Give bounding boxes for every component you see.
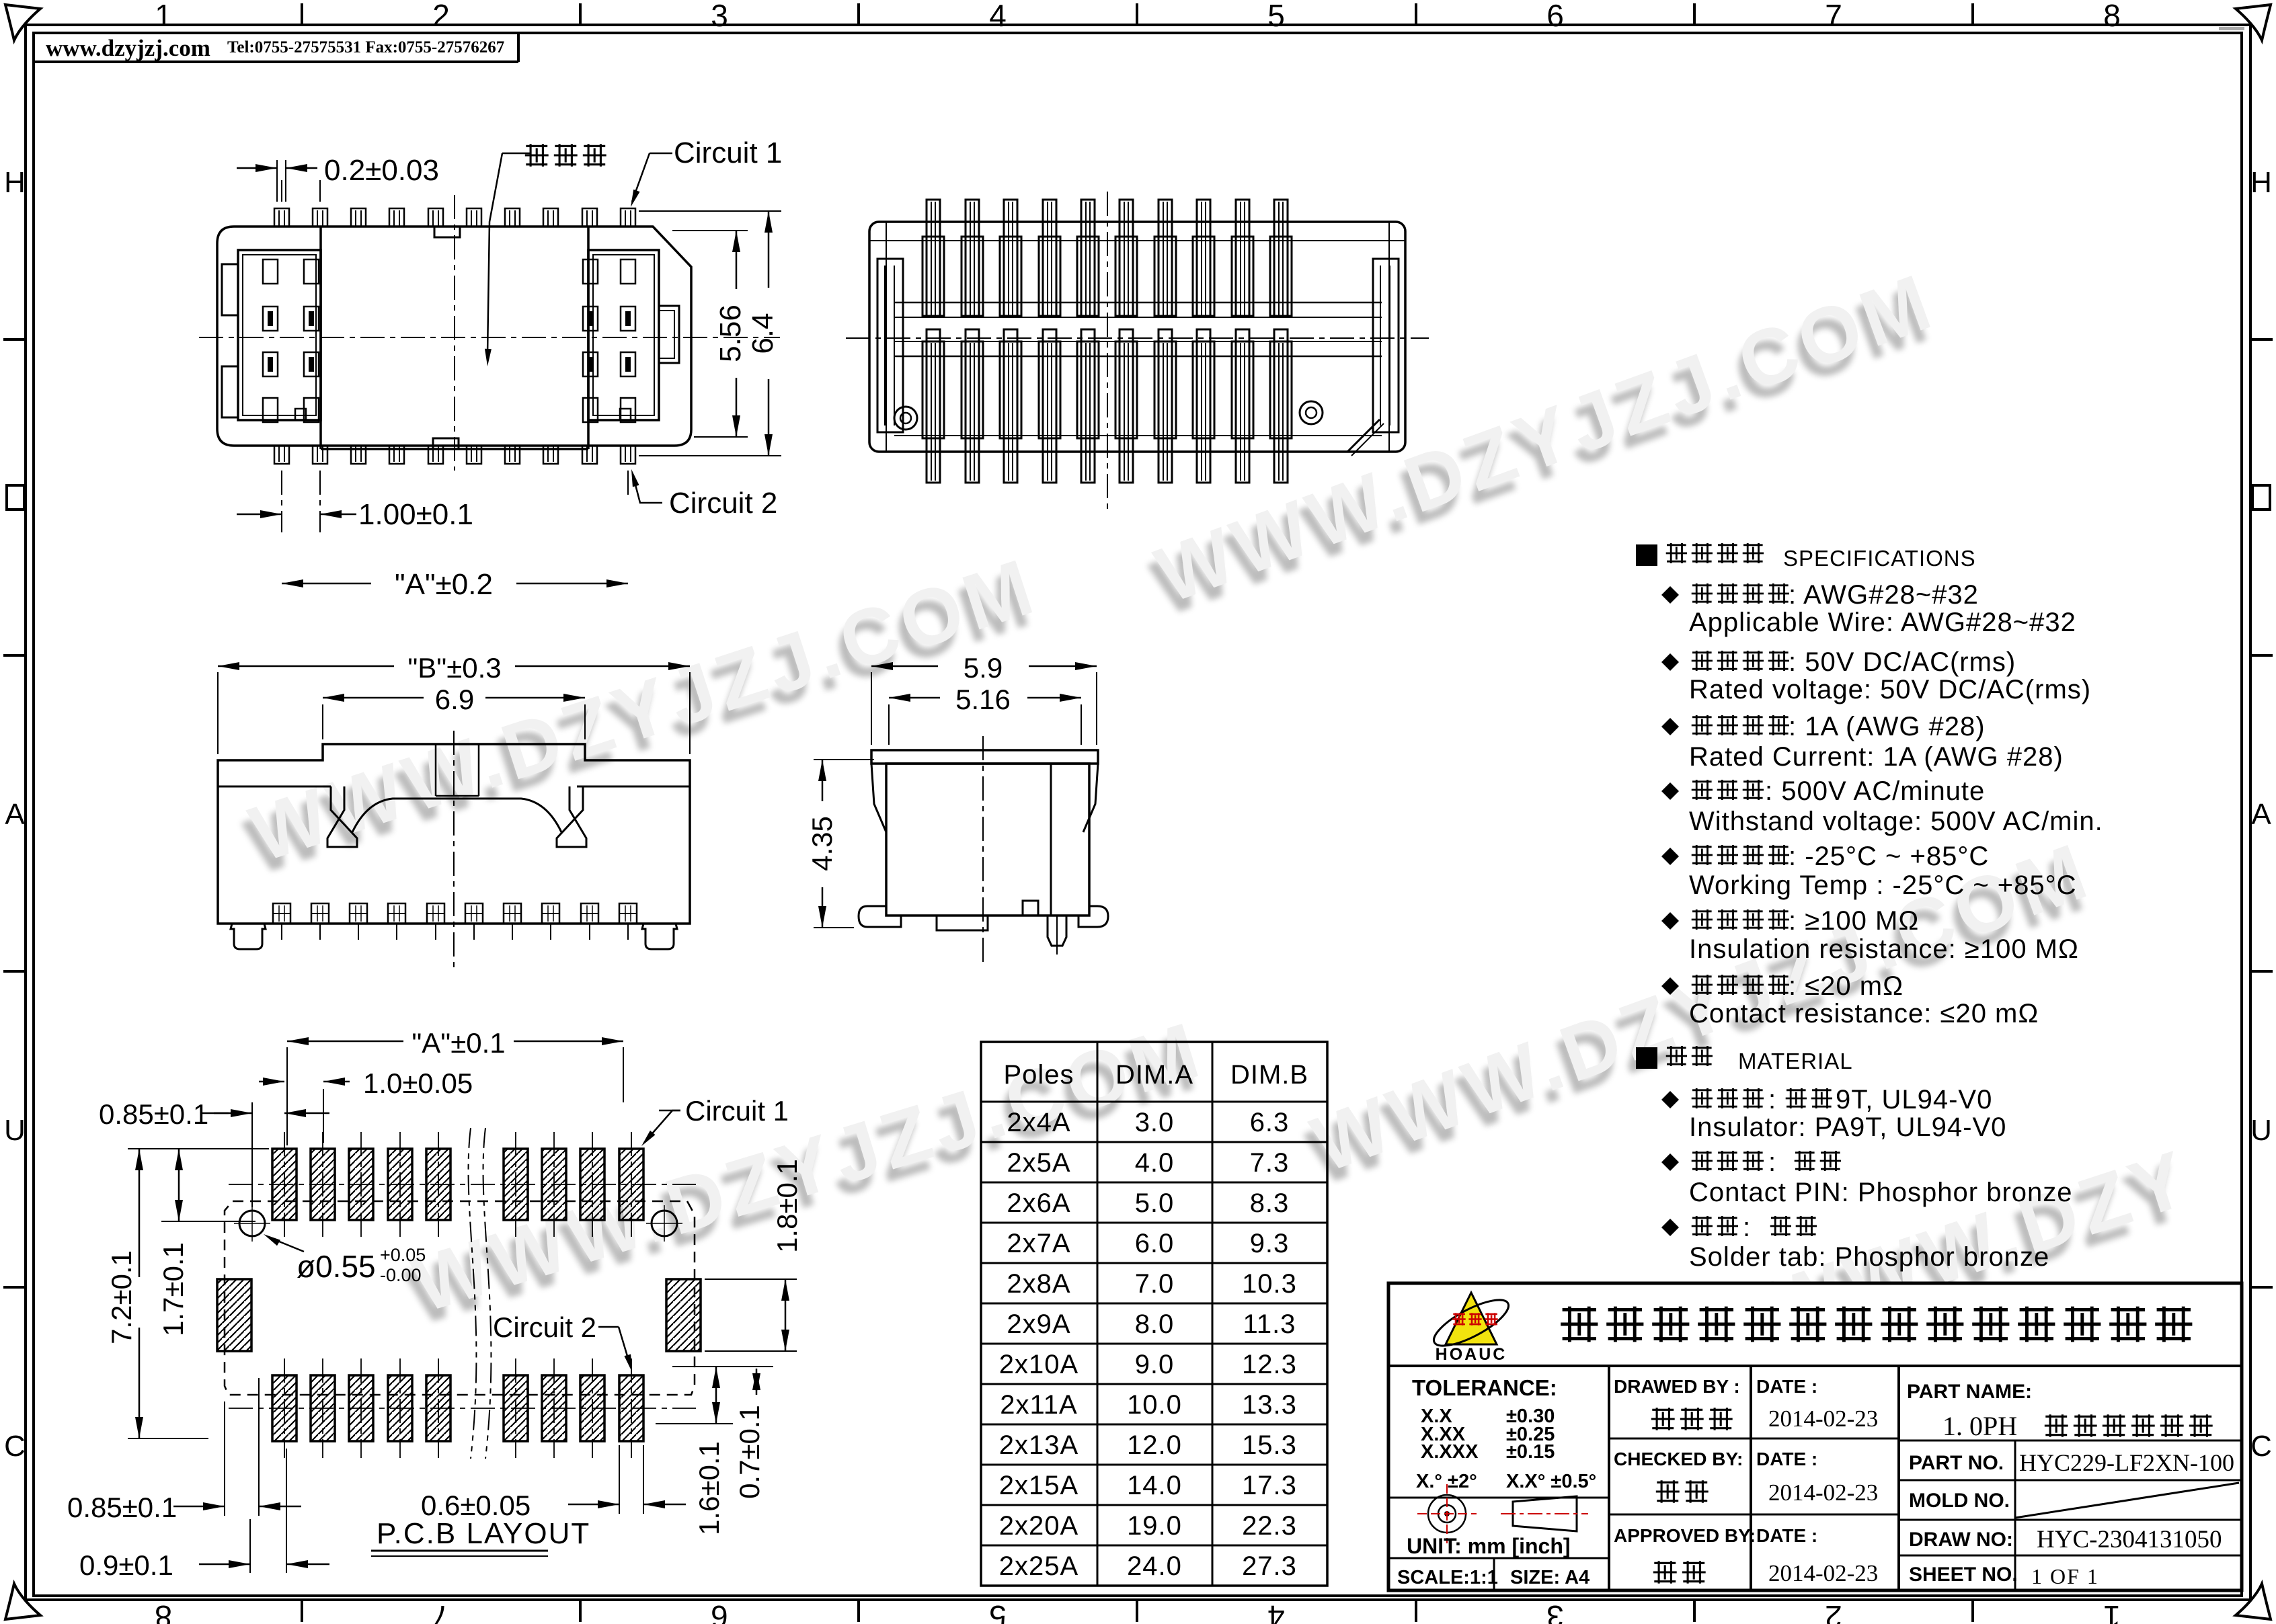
svg-text:5.0: 5.0	[1135, 1188, 1175, 1218]
svg-text:MOLD NO.: MOLD NO.	[1909, 1490, 2010, 1512]
svg-text:: -25°C ~ +85°C: : -25°C ~ +85°C	[1789, 842, 1989, 871]
svg-text:UNIT: mm [inch]: UNIT: mm [inch]	[1407, 1534, 1571, 1558]
svg-text:PART NO.: PART NO.	[1909, 1452, 2004, 1474]
svg-text:7.3: 7.3	[1250, 1148, 1290, 1178]
svg-text:A: A	[2251, 798, 2271, 831]
svg-text:1: 1	[155, 0, 172, 33]
svg-text:: ≤20 mΩ: : ≤20 mΩ	[1789, 971, 1904, 1001]
svg-text:2: 2	[432, 0, 450, 33]
svg-text:Poles: Poles	[1003, 1060, 1074, 1090]
svg-text:"A"±0.2: "A"±0.2	[395, 568, 493, 601]
svg-text:"A"±0.1: "A"±0.1	[411, 1027, 505, 1059]
svg-text:3: 3	[1546, 1599, 1564, 1624]
svg-text:MATERIAL: MATERIAL	[1738, 1049, 1853, 1073]
svg-text:U: U	[4, 1114, 26, 1147]
svg-text:6.4: 6.4	[746, 313, 779, 354]
svg-text:7.2±0.1: 7.2±0.1	[106, 1250, 137, 1344]
svg-text:14.0: 14.0	[1127, 1471, 1182, 1500]
svg-text:3.0: 3.0	[1135, 1108, 1175, 1137]
svg-text:CHECKED BY:: CHECKED BY:	[1614, 1449, 1743, 1469]
svg-text:4: 4	[989, 0, 1007, 33]
svg-text:6.3: 6.3	[1250, 1108, 1290, 1137]
svg-text::: :	[1743, 1213, 1750, 1242]
svg-text:22.3: 22.3	[1242, 1511, 1297, 1541]
svg-text:8.0: 8.0	[1135, 1309, 1175, 1339]
svg-text:DATE :: DATE :	[1756, 1525, 1817, 1546]
svg-text:4.0: 4.0	[1135, 1148, 1175, 1178]
svg-text:: AWG#28~#32: : AWG#28~#32	[1789, 580, 1979, 610]
svg-text:15.3: 15.3	[1242, 1430, 1297, 1460]
svg-text:6.0: 6.0	[1135, 1229, 1175, 1258]
svg-text:Working Temp : -25°C ~ +85°C: Working Temp : -25°C ~ +85°C	[1689, 870, 2077, 900]
svg-text:2x10A: 2x10A	[999, 1350, 1078, 1379]
svg-text:Insulation resistance: ≥100: Insulation resistance: ≥100 MΩ	[1689, 934, 2079, 964]
svg-text:±0.15: ±0.15	[1506, 1441, 1555, 1463]
svg-text:ø0.55: ø0.55	[297, 1249, 376, 1284]
svg-text:0.9±0.1: 0.9±0.1	[79, 1549, 173, 1581]
svg-text:Contact resistance: ≤20 mΩ: Contact resistance: ≤20 mΩ	[1689, 999, 2039, 1028]
svg-text:2x4A: 2x4A	[1007, 1108, 1070, 1137]
svg-text:HYC229-LF2XN-100: HYC229-LF2XN-100	[2019, 1449, 2234, 1476]
svg-text:12.0: 12.0	[1127, 1430, 1182, 1460]
svg-text:7: 7	[432, 1599, 450, 1624]
svg-text:SCALE:1:1: SCALE:1:1	[1397, 1567, 1498, 1588]
svg-text:3: 3	[711, 0, 728, 33]
svg-text:Circuit 2: Circuit 2	[669, 487, 777, 520]
svg-text:9.3: 9.3	[1250, 1229, 1290, 1258]
svg-text:DATE :: DATE :	[1756, 1449, 1817, 1469]
svg-text:13.3: 13.3	[1242, 1390, 1297, 1420]
svg-text:DIM.A: DIM.A	[1115, 1060, 1193, 1090]
svg-text:C: C	[2250, 1430, 2272, 1463]
svg-text:P.C.B LAYOUT: P.C.B LAYOUT	[377, 1517, 590, 1550]
svg-text:6: 6	[1546, 0, 1564, 33]
svg-text:-0.00: -0.00	[380, 1265, 422, 1285]
svg-text:0.2±0.03: 0.2±0.03	[324, 154, 439, 187]
svg-text:0.7±0.1: 0.7±0.1	[734, 1405, 765, 1499]
svg-text:HYC-2304131050: HYC-2304131050	[2037, 1526, 2222, 1553]
svg-text:8: 8	[2103, 0, 2121, 33]
svg-text:X.X° ±0.5°: X.X° ±0.5°	[1506, 1471, 1596, 1492]
svg-text:1.8±0.1: 1.8±0.1	[771, 1159, 803, 1253]
svg-text:A: A	[5, 798, 25, 831]
svg-text:5.9: 5.9	[964, 652, 1003, 684]
svg-text:5: 5	[989, 1599, 1007, 1624]
svg-text:1.00±0.1: 1.00±0.1	[358, 498, 473, 531]
svg-text:: 500V AC/minute: : 500V AC/minute	[1765, 776, 1985, 806]
svg-text:1: 1	[2103, 1599, 2121, 1624]
svg-text:Contact PIN: Phosphor bronz: Contact PIN: Phosphor bronze	[1689, 1178, 2073, 1207]
svg-text:2: 2	[1825, 1599, 1842, 1624]
svg-text:7.0: 7.0	[1135, 1269, 1175, 1299]
svg-text:H: H	[4, 166, 26, 199]
svg-text:DRAW NO:: DRAW NO:	[1909, 1529, 2013, 1551]
svg-text:10.3: 10.3	[1242, 1269, 1297, 1299]
svg-text:Insulator: PA9T, UL94-V0: Insulator: PA9T, UL94-V0	[1689, 1112, 2006, 1142]
svg-text:11.3: 11.3	[1243, 1309, 1296, 1339]
svg-text:DRAWED BY :: DRAWED BY :	[1614, 1376, 1740, 1397]
svg-text:17.3: 17.3	[1242, 1471, 1297, 1500]
svg-text:0.85±0.1: 0.85±0.1	[99, 1098, 208, 1130]
svg-text:2x9A: 2x9A	[1007, 1309, 1070, 1339]
svg-text:U: U	[2250, 1114, 2272, 1147]
svg-text:2x7A: 2x7A	[1007, 1229, 1070, 1258]
svg-text::: :	[1768, 1147, 1776, 1177]
svg-text:5.16: 5.16	[955, 684, 1011, 715]
svg-text:2x11A: 2x11A	[1000, 1390, 1077, 1420]
svg-text:10.0: 10.0	[1127, 1390, 1182, 1420]
svg-text:Rated voltage: 50V DC/AC(rm: Rated voltage: 50V DC/AC(rms)	[1689, 675, 2091, 704]
svg-text:0.85±0.1: 0.85±0.1	[67, 1492, 177, 1523]
svg-text:8: 8	[155, 1599, 172, 1624]
svg-text:1.6±0.1: 1.6±0.1	[693, 1441, 725, 1535]
svg-text:Solder tab: Phosphor bronze: Solder tab: Phosphor bronze	[1689, 1242, 2049, 1272]
svg-text:"B"±0.3: "B"±0.3	[407, 652, 501, 684]
svg-text:Applicable Wire: AWG#28~#32: Applicable Wire: AWG#28~#32	[1689, 608, 2076, 637]
svg-text:2x25A: 2x25A	[999, 1551, 1078, 1581]
svg-text:1. 0PH: 1. 0PH	[1943, 1411, 2017, 1441]
svg-text:9T, UL94-V0: 9T, UL94-V0	[1836, 1085, 1992, 1114]
svg-text:12.3: 12.3	[1242, 1350, 1297, 1379]
svg-text:: 1A (AWG #28): : 1A (AWG #28)	[1789, 712, 1986, 741]
svg-text:2x13A: 2x13A	[999, 1430, 1078, 1460]
svg-text:5.56: 5.56	[714, 304, 747, 362]
svg-text:Tel:0755-27575531 Fax:0755-27: Tel:0755-27575531 Fax:0755-27576267	[227, 38, 504, 56]
svg-text:1.0±0.05: 1.0±0.05	[363, 1067, 473, 1099]
svg-text:2014-02-23: 2014-02-23	[1768, 1479, 1878, 1506]
svg-text:DATE :: DATE :	[1756, 1376, 1817, 1397]
svg-text:0.6±0.05: 0.6±0.05	[421, 1490, 531, 1521]
svg-text:1 OF 1: 1 OF 1	[2031, 1564, 2099, 1588]
svg-text:HOAUC: HOAUC	[1436, 1345, 1507, 1364]
svg-text:5: 5	[1267, 0, 1285, 33]
svg-text:TOLERANCE:: TOLERANCE:	[1412, 1375, 1557, 1400]
svg-text:Withstand voltage: 500V AC/: Withstand voltage: 500V AC/min.	[1689, 807, 2103, 836]
svg-text:4: 4	[1267, 1599, 1285, 1624]
svg-text:24.0: 24.0	[1127, 1551, 1182, 1581]
svg-text:: 50V DC/AC(rms): : 50V DC/AC(rms)	[1789, 647, 2016, 677]
svg-text:+0.05: +0.05	[380, 1245, 426, 1265]
svg-text:8.3: 8.3	[1250, 1188, 1290, 1218]
svg-text:SHEET NO.: SHEET NO.	[1909, 1564, 2018, 1586]
svg-text:DIM.B: DIM.B	[1230, 1060, 1308, 1090]
svg-text::: :	[1768, 1085, 1776, 1114]
svg-text:2x15A: 2x15A	[999, 1471, 1078, 1500]
svg-text:X.XXX: X.XXX	[1421, 1441, 1479, 1463]
svg-text:19.0: 19.0	[1127, 1511, 1182, 1541]
svg-text:7: 7	[1825, 0, 1842, 33]
svg-text:Rated Current: 1A (AWG #28: Rated Current: 1A (AWG #28)	[1689, 742, 2064, 772]
svg-text:C: C	[4, 1430, 26, 1463]
svg-text:2x20A: 2x20A	[999, 1511, 1078, 1541]
svg-text:6: 6	[711, 1599, 728, 1624]
svg-text:2014-02-23: 2014-02-23	[1768, 1560, 1878, 1586]
svg-text:: ≥100 MΩ: : ≥100 MΩ	[1789, 906, 1919, 936]
svg-text:Circuit 1: Circuit 1	[685, 1095, 789, 1127]
svg-text:27.3: 27.3	[1242, 1551, 1297, 1581]
svg-text:SIZE: A4: SIZE: A4	[1510, 1567, 1590, 1588]
svg-text:2x8A: 2x8A	[1007, 1269, 1070, 1299]
svg-text:2x5A: 2x5A	[1007, 1148, 1070, 1178]
svg-text:www.dzyjzj.com: www.dzyjzj.com	[46, 35, 210, 61]
svg-text:6.9: 6.9	[435, 684, 474, 715]
svg-text:SPECIFICATIONS: SPECIFICATIONS	[1783, 546, 1976, 571]
svg-text:H: H	[2250, 166, 2272, 199]
svg-text:9.0: 9.0	[1135, 1350, 1175, 1379]
svg-text:Circuit 2: Circuit 2	[493, 1311, 596, 1343]
svg-text:APPROVED BY:: APPROVED BY:	[1614, 1525, 1756, 1546]
svg-text:Circuit 1: Circuit 1	[674, 136, 782, 169]
svg-text:4.35: 4.35	[806, 816, 838, 871]
svg-text:2x6A: 2x6A	[1007, 1188, 1070, 1218]
svg-text:2014-02-23: 2014-02-23	[1768, 1406, 1878, 1432]
svg-text:1.7±0.1: 1.7±0.1	[157, 1242, 189, 1336]
svg-text:PART NAME:: PART NAME:	[1907, 1381, 2032, 1403]
